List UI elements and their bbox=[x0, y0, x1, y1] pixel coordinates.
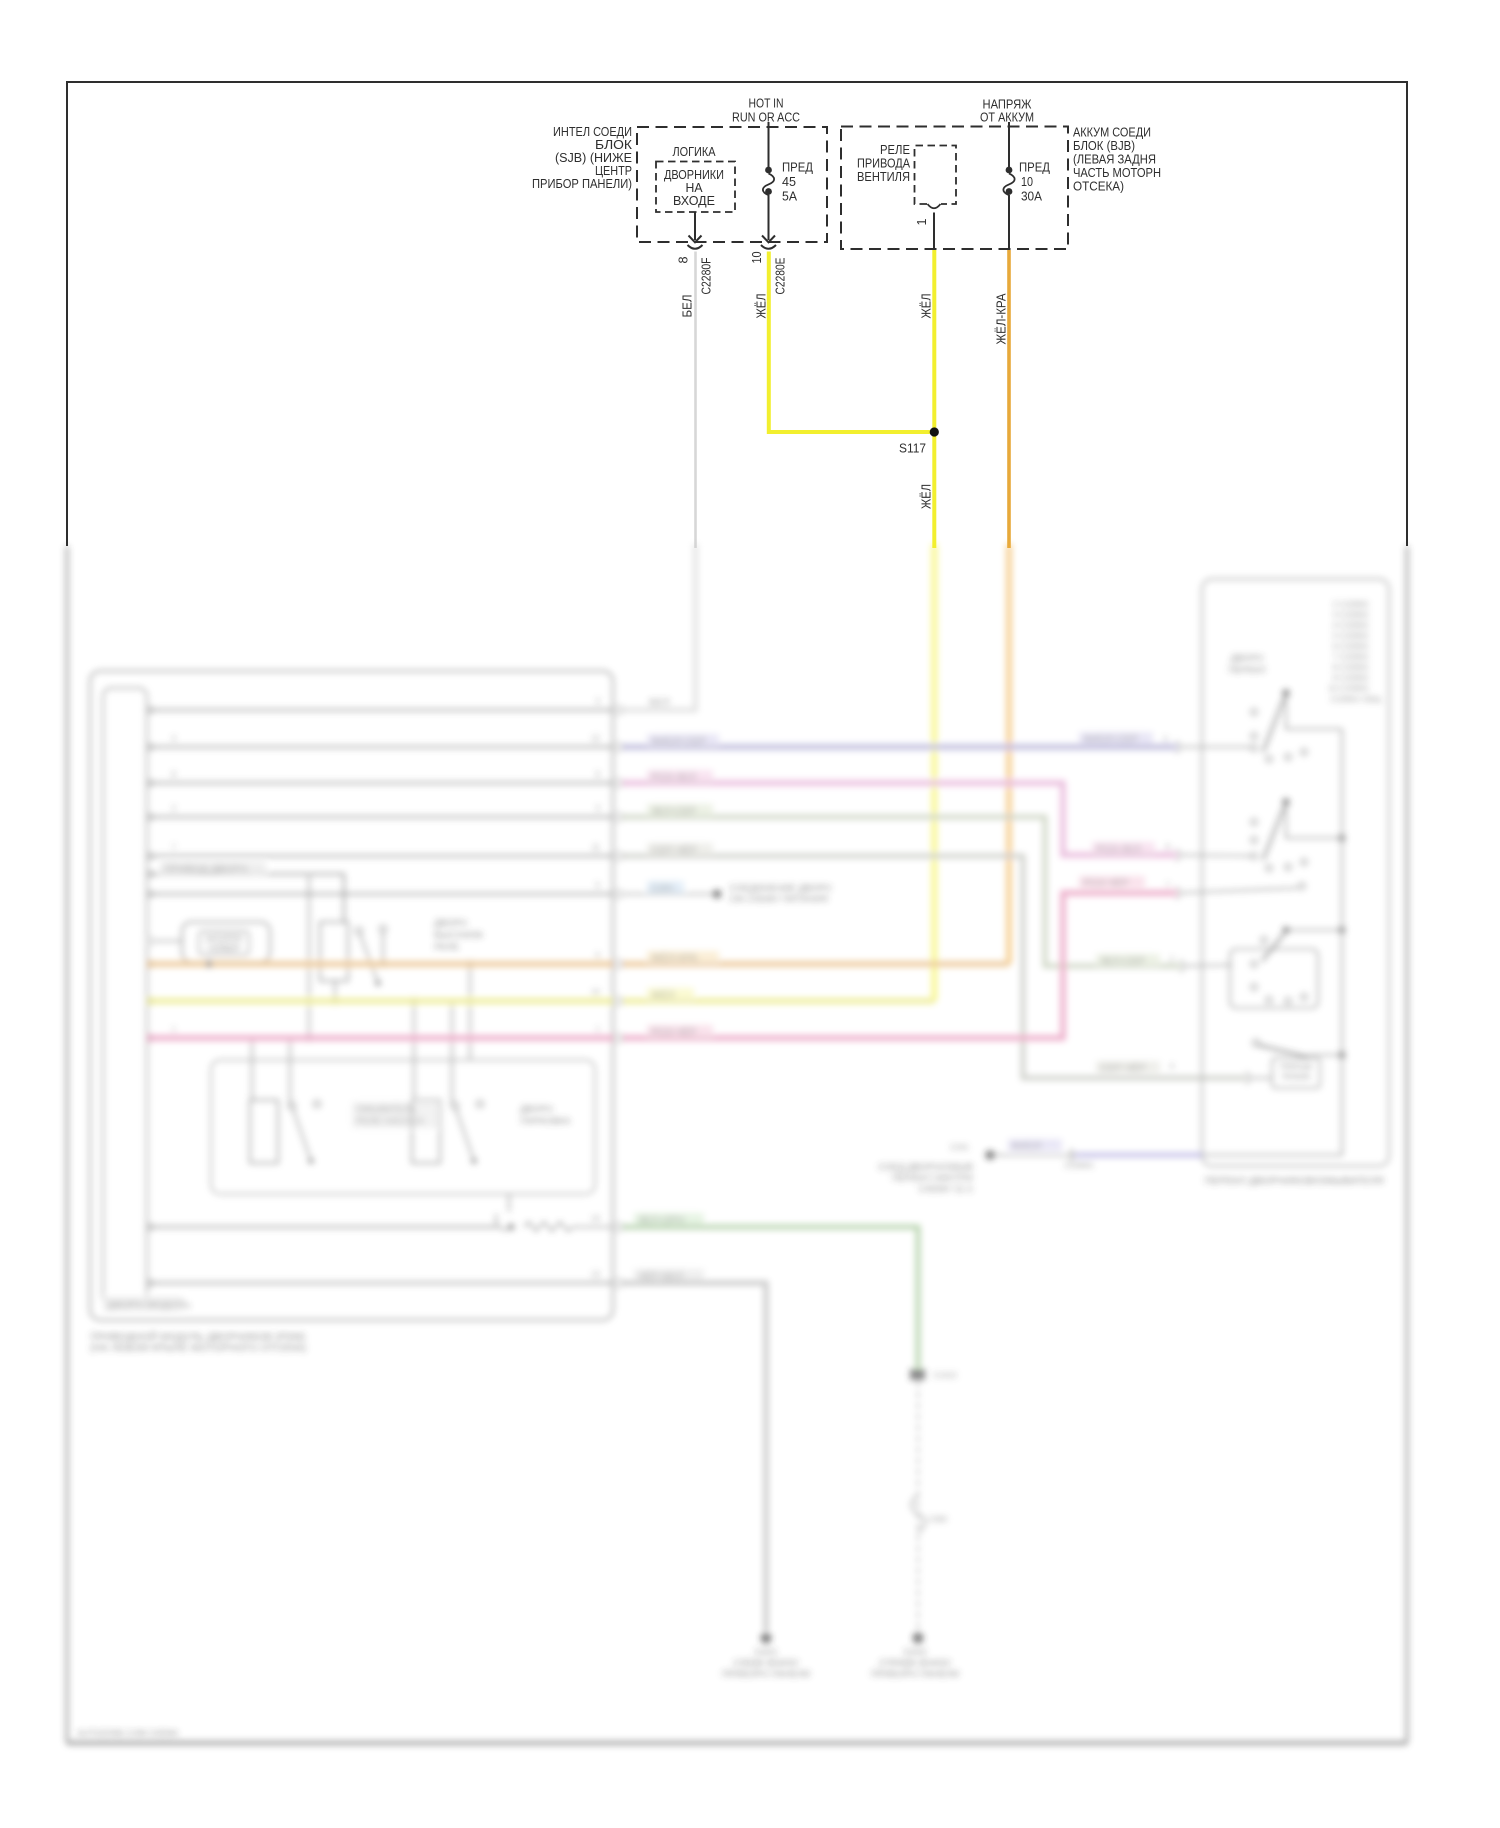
svg-text:12: 12 bbox=[591, 734, 600, 743]
svg-text:СЕР-ЧЁР: СЕР-ЧЁР bbox=[1100, 1062, 1146, 1074]
svg-text:5А: 5А bbox=[782, 190, 798, 204]
svg-text:СПРАВА ВНИЗУ: СПРАВА ВНИЗУ bbox=[879, 1658, 952, 1669]
svg-text:ОМЫВАТЕЛЬ: ОМЫВАТЕЛЬ bbox=[356, 1104, 416, 1115]
svg-text:10 C2280G: 10 C2280G bbox=[1328, 684, 1369, 693]
svg-text:(НА ЛЕВОМ КРЫЛЕ МОТОРНОГО ОТСЕ: (НА ЛЕВОМ КРЫЛЕ МОТОРНОГО ОТСЕКА) bbox=[90, 1342, 306, 1354]
svg-text:ЧЁР-БЕЛ: ЧЁР-БЕЛ bbox=[638, 1270, 683, 1282]
svg-text:C1413: C1413 bbox=[933, 1371, 957, 1380]
svg-text:1: 1 bbox=[915, 218, 929, 225]
svg-text:10: 10 bbox=[750, 251, 764, 263]
svg-text:G202: G202 bbox=[903, 1647, 926, 1658]
svg-text:HOT IN: HOT IN bbox=[749, 96, 784, 111]
svg-text:7: 7 bbox=[1166, 881, 1171, 890]
svg-text:C2280G: C2280G bbox=[1064, 1161, 1094, 1170]
svg-text:7: 7 bbox=[172, 843, 177, 852]
svg-text:4: 4 bbox=[1170, 1062, 1175, 1071]
svg-text:РЕЛЕ НАСОСА: РЕЛЕ НАСОСА bbox=[356, 1116, 425, 1127]
svg-text:СМ СХЕМУ ПИТАНИЯ: СМ СХЕМУ ПИТАНИЯ bbox=[729, 894, 828, 905]
svg-text:ПРИБОР ПАНЕЛИ): ПРИБОР ПАНЕЛИ) bbox=[532, 176, 632, 191]
svg-text:СИН: СИН bbox=[651, 882, 674, 894]
svg-text:ЛОГИКА: ЛОГИКА bbox=[673, 144, 716, 159]
svg-text:ФИОЛ-СЕР: ФИОЛ-СЕР bbox=[1083, 733, 1139, 745]
svg-text:C2280F: C2280F bbox=[700, 257, 714, 294]
svg-text:7 C2280G: 7 C2280G bbox=[1333, 653, 1369, 662]
svg-text:45: 45 bbox=[782, 175, 796, 189]
svg-text:СЛЕВА ВНИЗУ: СЛЕВА ВНИЗУ bbox=[733, 1658, 800, 1669]
svg-text:10: 10 bbox=[1021, 175, 1033, 189]
svg-text:ДВОРН МОДУЛЬ: ДВОРН МОДУЛЬ bbox=[107, 1299, 191, 1311]
svg-text:СХЕМУ 31-2: СХЕМУ 31-2 bbox=[918, 1184, 973, 1195]
svg-text:ЗЕЛ-ОРН: ЗЕЛ-ОРН bbox=[638, 1214, 685, 1226]
svg-text:ЖЁЛ-КРА: ЖЁЛ-КРА bbox=[995, 293, 1009, 345]
svg-text:СОЕДИНЕНИЕ ДВОРН: СОЕДИНЕНИЕ ДВОРН bbox=[729, 883, 832, 894]
svg-text:5: 5 bbox=[596, 881, 601, 890]
svg-text:ПЕРЕКЛ ДВОРНИКОВ/ОМЫВАТЕЛЯ: ПЕРЕКЛ ДВОРНИКОВ/ОМЫВАТЕЛЯ bbox=[1204, 1175, 1384, 1187]
svg-text:ЖЁЛ-КРА: ЖЁЛ-КРА bbox=[651, 952, 698, 964]
svg-text:6 C2280G: 6 C2280G bbox=[1333, 642, 1369, 651]
svg-text:10: 10 bbox=[591, 988, 600, 997]
svg-text:ОТСЕКА): ОТСЕКА) bbox=[1073, 179, 1124, 194]
svg-text:СЕЙВЕР: СЕЙВЕР bbox=[208, 944, 241, 953]
svg-text:РЕЛЕ: РЕЛЕ bbox=[434, 942, 459, 953]
svg-text:6: 6 bbox=[596, 951, 601, 960]
svg-text:G201: G201 bbox=[754, 1647, 777, 1658]
svg-text:С241: С241 bbox=[950, 1143, 970, 1152]
svg-text:2 C2280G: 2 C2280G bbox=[1333, 600, 1369, 609]
svg-text:ПЕРЕКЛ: ПЕРЕКЛ bbox=[1228, 665, 1266, 676]
svg-text:ФИОЛ-СЕР: ФИОЛ-СЕР bbox=[651, 735, 707, 747]
svg-text:3 C2280G: 3 C2280G bbox=[1333, 611, 1369, 620]
svg-text:14: 14 bbox=[591, 1214, 600, 1223]
svg-text:4: 4 bbox=[172, 734, 177, 743]
svg-text:РОЗ-ЧЁР: РОЗ-ЧЁР bbox=[651, 1026, 697, 1038]
svg-text:5: 5 bbox=[1164, 735, 1169, 744]
svg-text:8: 8 bbox=[677, 256, 691, 263]
svg-text:РОЗ-ЗЕЛ: РОЗ-ЗЕЛ bbox=[651, 771, 696, 783]
svg-text:4 C2280G: 4 C2280G bbox=[1333, 621, 1369, 630]
svg-text:3: 3 bbox=[596, 697, 601, 706]
svg-text:11: 11 bbox=[592, 843, 601, 852]
svg-text:ОТ АККУМ: ОТ АККУМ bbox=[980, 110, 1034, 125]
svg-text:ПРЕД: ПРЕД bbox=[782, 161, 813, 175]
svg-text:ФИОЛ: ФИОЛ bbox=[1011, 1140, 1042, 1152]
svg-text:3: 3 bbox=[596, 804, 601, 813]
svg-text:ЗЕЛ-СЕР: ЗЕЛ-СЕР bbox=[1100, 955, 1145, 967]
svg-text:БЕЛ: БЕЛ bbox=[681, 295, 695, 318]
svg-text:РОЗ-ЧЁР: РОЗ-ЧЁР bbox=[1083, 877, 1129, 889]
svg-text:ПРИВОД ДВОРН: ПРИВОД ДВОРН bbox=[164, 863, 247, 875]
svg-text:8: 8 bbox=[172, 770, 177, 779]
svg-text:ДВОРНИКИ: ДВОРНИКИ bbox=[664, 168, 724, 182]
svg-text:НА: НА bbox=[686, 181, 704, 195]
svg-text:1: 1 bbox=[596, 1025, 601, 1034]
svg-text:ПРИБОРН ПАНЕЛИ: ПРИБОРН ПАНЕЛИ bbox=[722, 1669, 811, 1680]
svg-text:БЕЛ: БЕЛ bbox=[649, 697, 670, 709]
svg-text:8: 8 bbox=[1166, 843, 1171, 852]
svg-text:ПРИБОРН ПАНЕЛИ: ПРИБОРН ПАНЕЛИ bbox=[871, 1669, 960, 1680]
svg-text:C2280E: C2280E bbox=[774, 258, 788, 295]
svg-text:ДВОРН: ДВОРН bbox=[1230, 653, 1263, 664]
svg-text:ВХОДЕ: ВХОДЕ bbox=[673, 194, 715, 208]
svg-text:2: 2 bbox=[172, 804, 177, 813]
svg-text:ЗЕЛ-СЕР: ЗЕЛ-СЕР bbox=[651, 805, 696, 817]
svg-text:СЕР-ЧЁР: СЕР-ЧЁР bbox=[651, 844, 697, 856]
svg-text:2: 2 bbox=[1170, 955, 1175, 964]
svg-text:ЖЁЛ: ЖЁЛ bbox=[755, 294, 769, 319]
svg-text:ПАРКОВКА: ПАРКОВКА bbox=[520, 1116, 571, 1127]
svg-text:9 C2280G: 9 C2280G bbox=[1333, 674, 1369, 683]
svg-text:AUTOZONE.COM СХЕМА: AUTOZONE.COM СХЕМА bbox=[77, 1728, 179, 1738]
svg-text:13: 13 bbox=[591, 1270, 600, 1279]
svg-text:8 C2280G: 8 C2280G bbox=[1333, 663, 1369, 672]
svg-text:ДВОРН: ДВОРН bbox=[520, 1104, 553, 1115]
svg-text:ПРЕРЫВ: ПРЕРЫВ bbox=[1280, 1062, 1312, 1071]
svg-text:РОЗ-ЗЕЛ: РОЗ-ЗЕЛ bbox=[1096, 843, 1141, 855]
svg-text:СОЕД ДВОРН/ОМЫВ: СОЕД ДВОРН/ОМЫВ bbox=[878, 1162, 973, 1173]
svg-text:5 C2280G: 5 C2280G bbox=[1333, 632, 1369, 641]
svg-text:C2280G ОБЩ: C2280G ОБЩ bbox=[1330, 695, 1381, 704]
svg-text:ЖЁЛ: ЖЁЛ bbox=[920, 484, 934, 509]
svg-text:С300: С300 bbox=[928, 1515, 948, 1524]
svg-text:9: 9 bbox=[596, 770, 601, 779]
svg-text:БАТАРЕЯ: БАТАРЕЯ bbox=[206, 934, 242, 943]
svg-text:ЖЁЛ: ЖЁЛ bbox=[920, 294, 934, 319]
svg-text:РЕЖИМ: РЕЖИМ bbox=[1282, 1072, 1311, 1081]
svg-text:ДВОРН: ДВОРН bbox=[434, 918, 467, 929]
svg-text:ПЕРЕКЛ СМОТРИ: ПЕРЕКЛ СМОТРИ bbox=[892, 1173, 973, 1184]
svg-text:ВЫС/НИЗК: ВЫС/НИЗК bbox=[434, 930, 484, 941]
svg-text:ВЕНТИЛЯ: ВЕНТИЛЯ bbox=[857, 169, 910, 184]
svg-text:RUN OR ACC: RUN OR ACC bbox=[732, 110, 800, 125]
svg-text:ЖЁЛ: ЖЁЛ bbox=[651, 989, 675, 1001]
svg-text:1: 1 bbox=[172, 1025, 177, 1034]
svg-text:S117: S117 bbox=[899, 441, 926, 456]
svg-text:30А: 30А bbox=[1021, 190, 1043, 204]
svg-text:ПРЕД: ПРЕД bbox=[1019, 161, 1050, 175]
